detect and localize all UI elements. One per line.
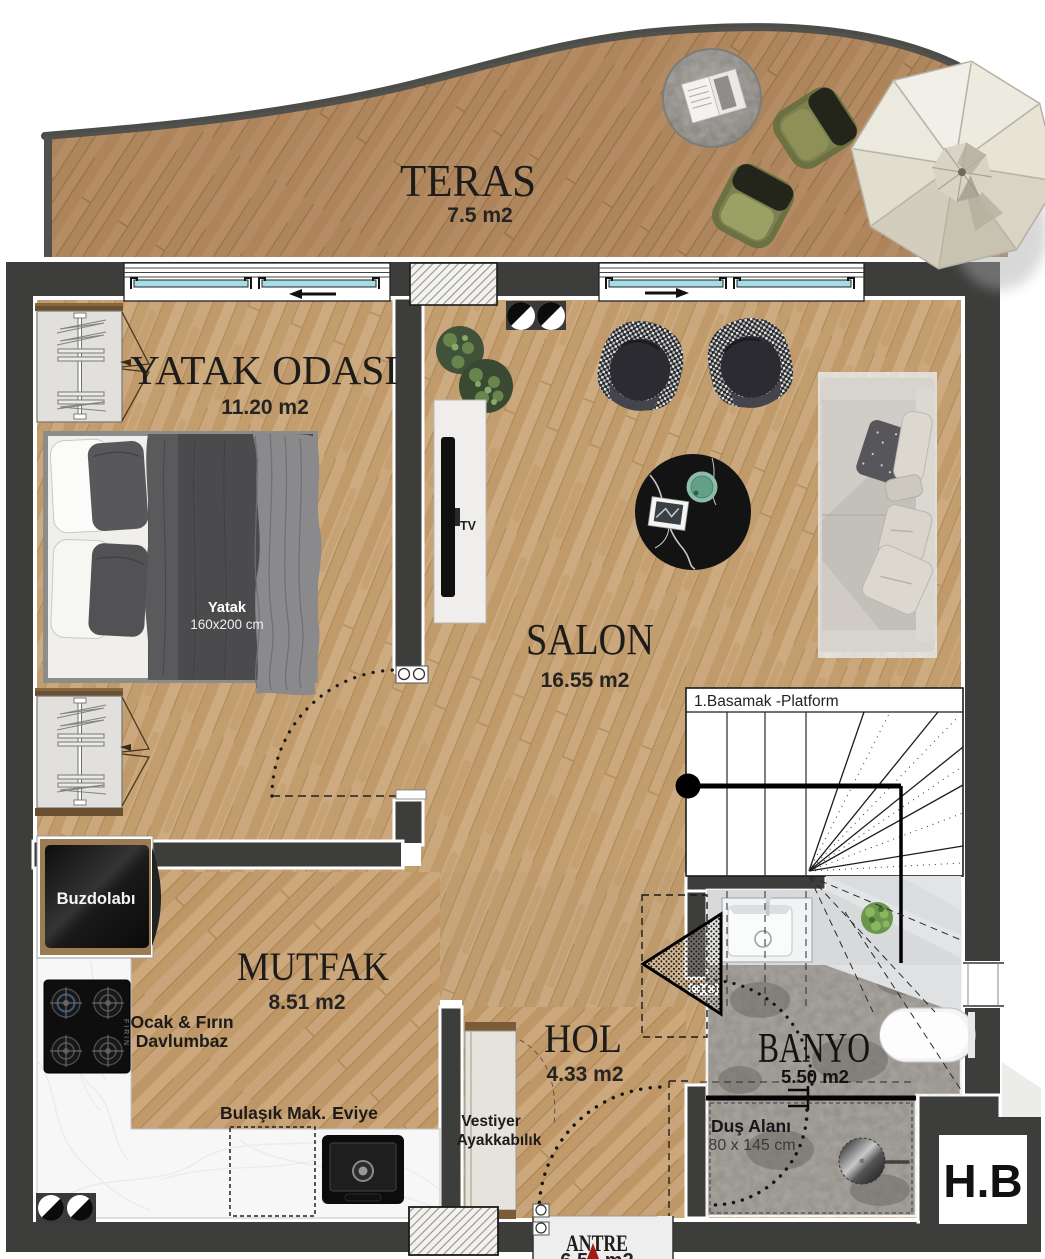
svg-text:SALON: SALON — [526, 615, 654, 664]
svg-text:8.51 m2: 8.51 m2 — [268, 991, 345, 1014]
svg-text:H.B: H.B — [943, 1155, 1022, 1207]
svg-text:MUTFAK: MUTFAK — [237, 944, 389, 989]
svg-text:1.Basamak -Platform: 1.Basamak -Platform — [694, 693, 839, 710]
svg-text:Duş Alanı: Duş Alanı — [711, 1116, 791, 1136]
svg-text:F I R I N: F I R I N — [122, 1019, 129, 1045]
svg-text:Ocak & Fırın: Ocak & Fırın — [130, 1012, 233, 1032]
svg-text:Davlumbaz: Davlumbaz — [136, 1031, 229, 1051]
svg-text:HOL: HOL — [544, 1016, 622, 1061]
svg-text:YATAK ODASI: YATAK ODASI — [130, 347, 398, 393]
svg-text:TERAS: TERAS — [400, 156, 536, 206]
svg-text:Vestiyer: Vestiyer — [461, 1113, 520, 1130]
svg-text:Bulaşık Mak.: Bulaşık Mak. — [220, 1103, 326, 1123]
svg-text:Eviye: Eviye — [332, 1103, 378, 1123]
svg-text:Yatak: Yatak — [208, 600, 247, 616]
svg-text:80 x 145 cm: 80 x 145 cm — [708, 1137, 795, 1154]
svg-text:4.33 m2: 4.33 m2 — [546, 1063, 623, 1086]
svg-text:Ayakkabılık: Ayakkabılık — [457, 1132, 542, 1149]
svg-text:11.20 m2: 11.20 m2 — [221, 396, 309, 419]
svg-text:7.5 m2: 7.5 m2 — [447, 204, 512, 227]
svg-text:160x200 cm: 160x200 cm — [190, 617, 264, 632]
svg-text:5.50 m2: 5.50 m2 — [781, 1066, 849, 1087]
svg-text:16.55 m2: 16.55 m2 — [541, 669, 630, 692]
svg-text:TV: TV — [460, 519, 477, 533]
svg-text:Buzdolabı: Buzdolabı — [57, 890, 136, 908]
